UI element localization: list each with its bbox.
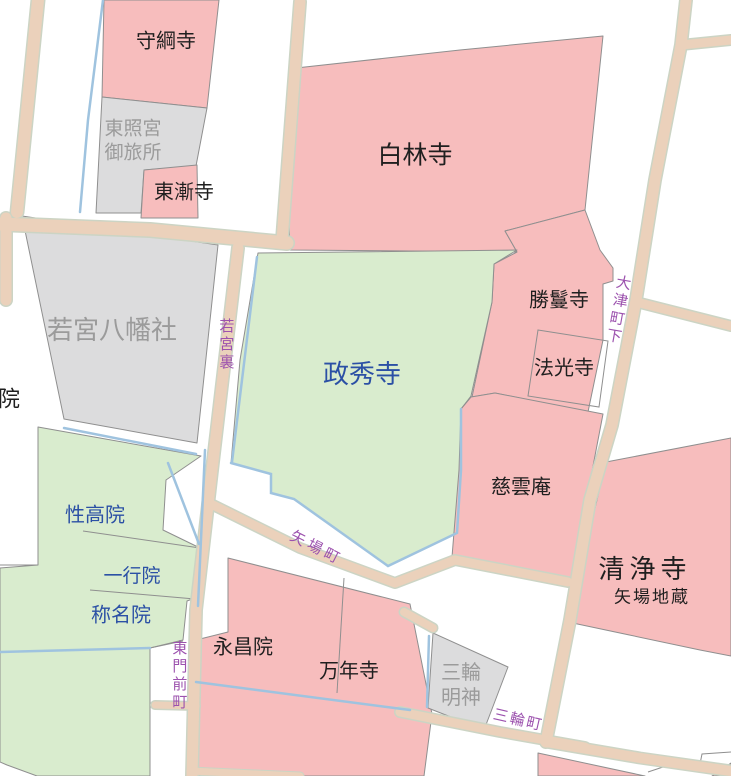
road-northeast-branch: [681, 40, 731, 45]
parcel-label-seishuji: 政秀寺: [323, 358, 401, 391]
parcel-label-miwamyojin-line2: 明神: [441, 686, 481, 711]
road-bottom-left: [190, 771, 300, 776]
parcel-label-shokoin: 性高院: [65, 504, 125, 529]
parcel-label-hokoji: 法光寺: [534, 357, 594, 382]
parcel-label-miwamyojin: 三輪 明神: [441, 661, 481, 711]
parcel-label-miwamyojin-line1: 三輪: [441, 661, 481, 686]
historical-parcel-map: 守綱寺 東照宮 御旅所 東漸寺 白林寺 勝鬘寺 法光寺 若宮八幡社 院 政秀寺 …: [0, 0, 731, 776]
parcel-label-tozenji: 東漸寺: [154, 181, 214, 206]
parcel-label-ichigyoin: 一行院: [103, 565, 160, 589]
parcel-label-otabisho: 東照宮 御旅所: [104, 117, 161, 165]
street-label-wakamiyaura: 若宮裏: [216, 318, 235, 372]
parcel-label-shomyoin: 称名院: [91, 604, 151, 629]
parcel-label-shomanji: 勝鬘寺: [529, 289, 589, 314]
parcel-label-moritsunaji: 守綱寺: [136, 30, 196, 55]
parcel-label-yaba-jizo: 矢場地蔵: [614, 586, 690, 607]
parcel-label-otabisho-line1: 東照宮: [104, 117, 161, 141]
parcel-label-otabisho-line2: 御旅所: [104, 141, 161, 165]
parcel-label-jiunan: 慈雲庵: [491, 476, 551, 501]
parcel-label-shojoji: 清浄寺: [598, 553, 691, 586]
street-label-higashimonzencho: 東門前町: [169, 640, 188, 712]
parcel-label-eishoin: 永昌院: [213, 636, 273, 661]
parcel-label-mannenji: 万年寺: [319, 660, 379, 685]
parcel-label-in-clipped: 院: [0, 385, 20, 413]
parcel-label-wakamiya: 若宮八幡社: [47, 314, 177, 347]
parcel-label-hakurinji: 白林寺: [377, 140, 452, 171]
